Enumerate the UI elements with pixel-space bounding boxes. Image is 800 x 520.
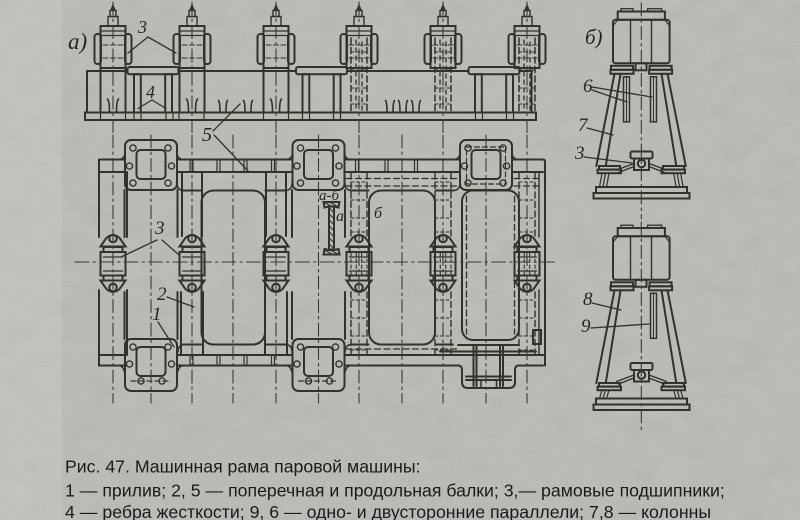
- svg-text:9: 9: [581, 316, 591, 337]
- svg-text:а: а: [336, 208, 344, 225]
- svg-text:б: б: [374, 205, 383, 222]
- svg-text:3: 3: [154, 218, 165, 239]
- svg-text:2: 2: [157, 284, 167, 305]
- svg-text:4 — ребра жесткости; 9, 6 — од: 4 — ребра жесткости; 9, 6 — одно- и двус…: [65, 502, 711, 520]
- svg-text:а): а): [68, 29, 87, 54]
- svg-text:а-б: а-б: [319, 188, 339, 204]
- svg-text:Рис. 47. Машинная рама паровой: Рис. 47. Машинная рама паровой машины:: [65, 457, 421, 477]
- svg-text:3: 3: [137, 17, 147, 37]
- svg-text:6: 6: [583, 76, 593, 97]
- svg-text:1: 1: [152, 304, 162, 325]
- svg-text:3: 3: [574, 143, 585, 164]
- svg-text:7: 7: [578, 115, 589, 136]
- svg-text:4: 4: [146, 82, 155, 102]
- svg-text:1 — прилив; 2, 5 — поперечная: 1 — прилив; 2, 5 — поперечная и продольн…: [65, 481, 725, 501]
- svg-text:5: 5: [202, 124, 212, 146]
- svg-text:б): б): [585, 25, 603, 49]
- svg-text:8: 8: [583, 289, 593, 310]
